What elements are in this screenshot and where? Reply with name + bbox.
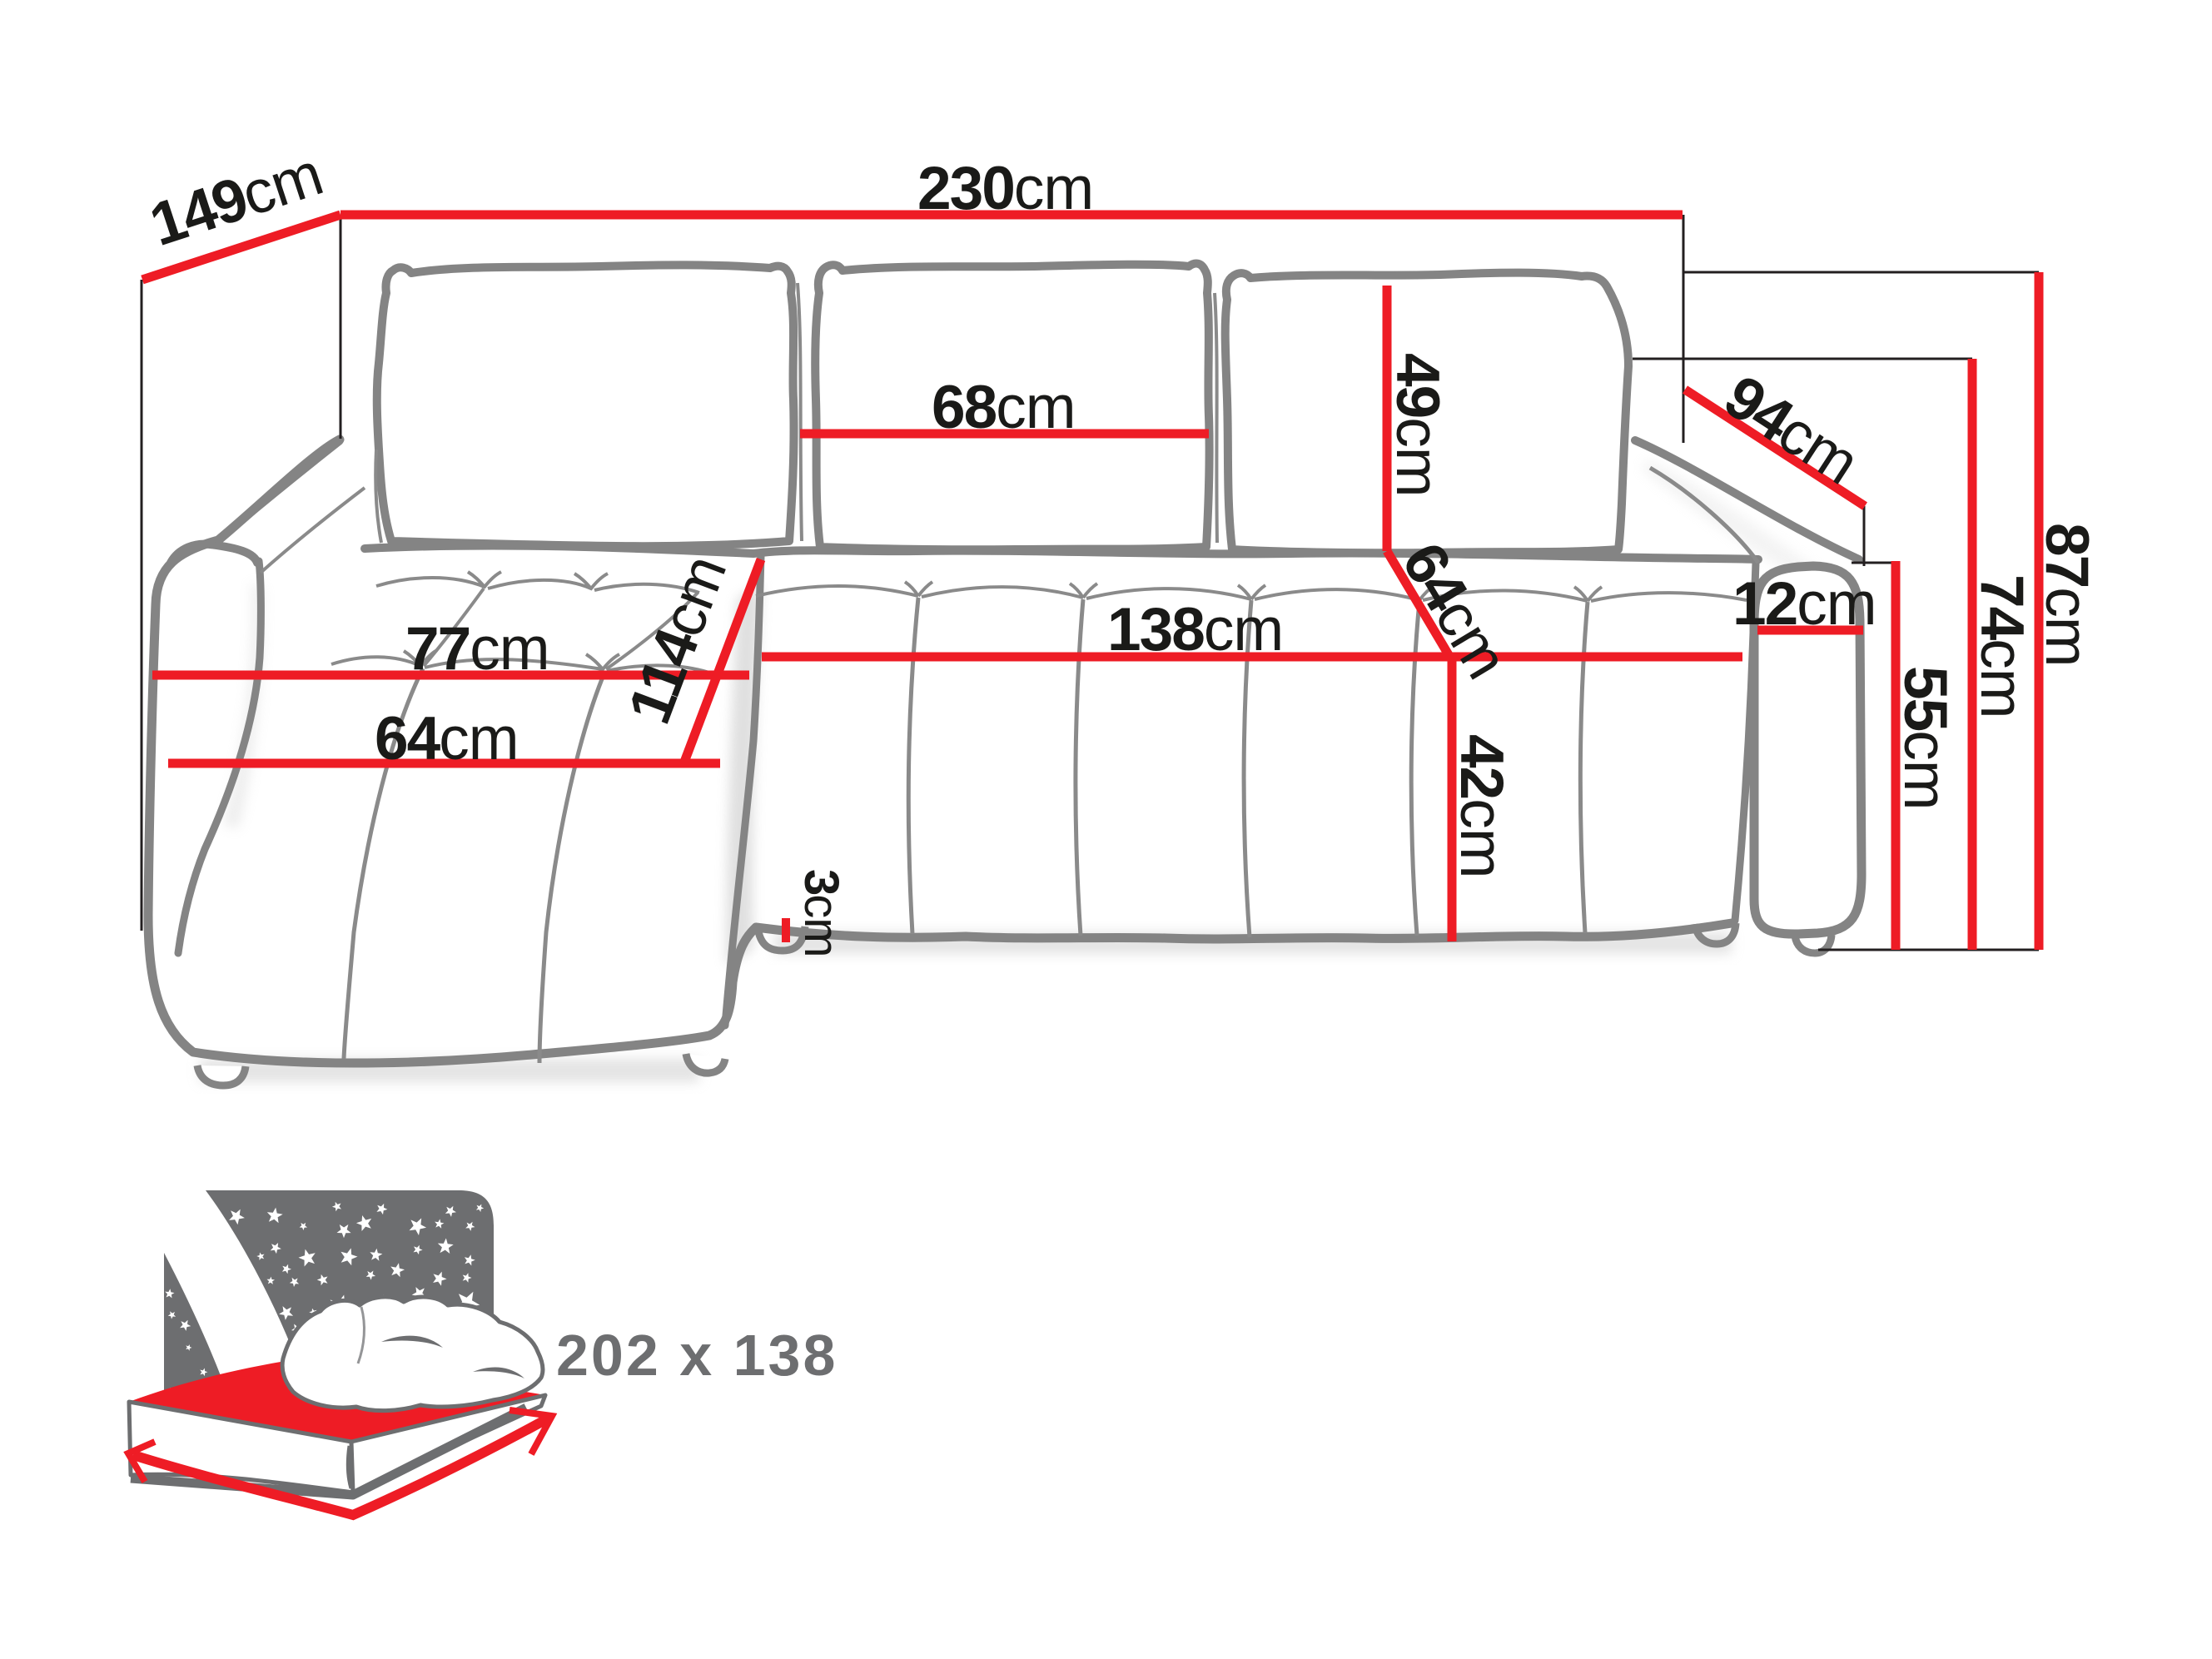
- svg-text:202 x 138: 202 x 138: [556, 1323, 838, 1388]
- svg-text:77cm: 77cm: [405, 615, 549, 683]
- svg-text:42cm: 42cm: [1448, 734, 1515, 878]
- svg-text:49cm: 49cm: [1384, 353, 1451, 497]
- svg-text:230cm: 230cm: [917, 155, 1093, 222]
- svg-text:138cm: 138cm: [1107, 596, 1283, 663]
- svg-text:55cm: 55cm: [1891, 666, 1959, 810]
- svg-text:68cm: 68cm: [932, 374, 1076, 441]
- svg-text:74cm: 74cm: [1968, 574, 2036, 718]
- svg-text:64cm: 64cm: [375, 705, 519, 772]
- svg-text:3cm: 3cm: [794, 869, 848, 957]
- svg-text:87cm: 87cm: [2033, 523, 2100, 667]
- svg-text:12cm: 12cm: [1732, 570, 1876, 638]
